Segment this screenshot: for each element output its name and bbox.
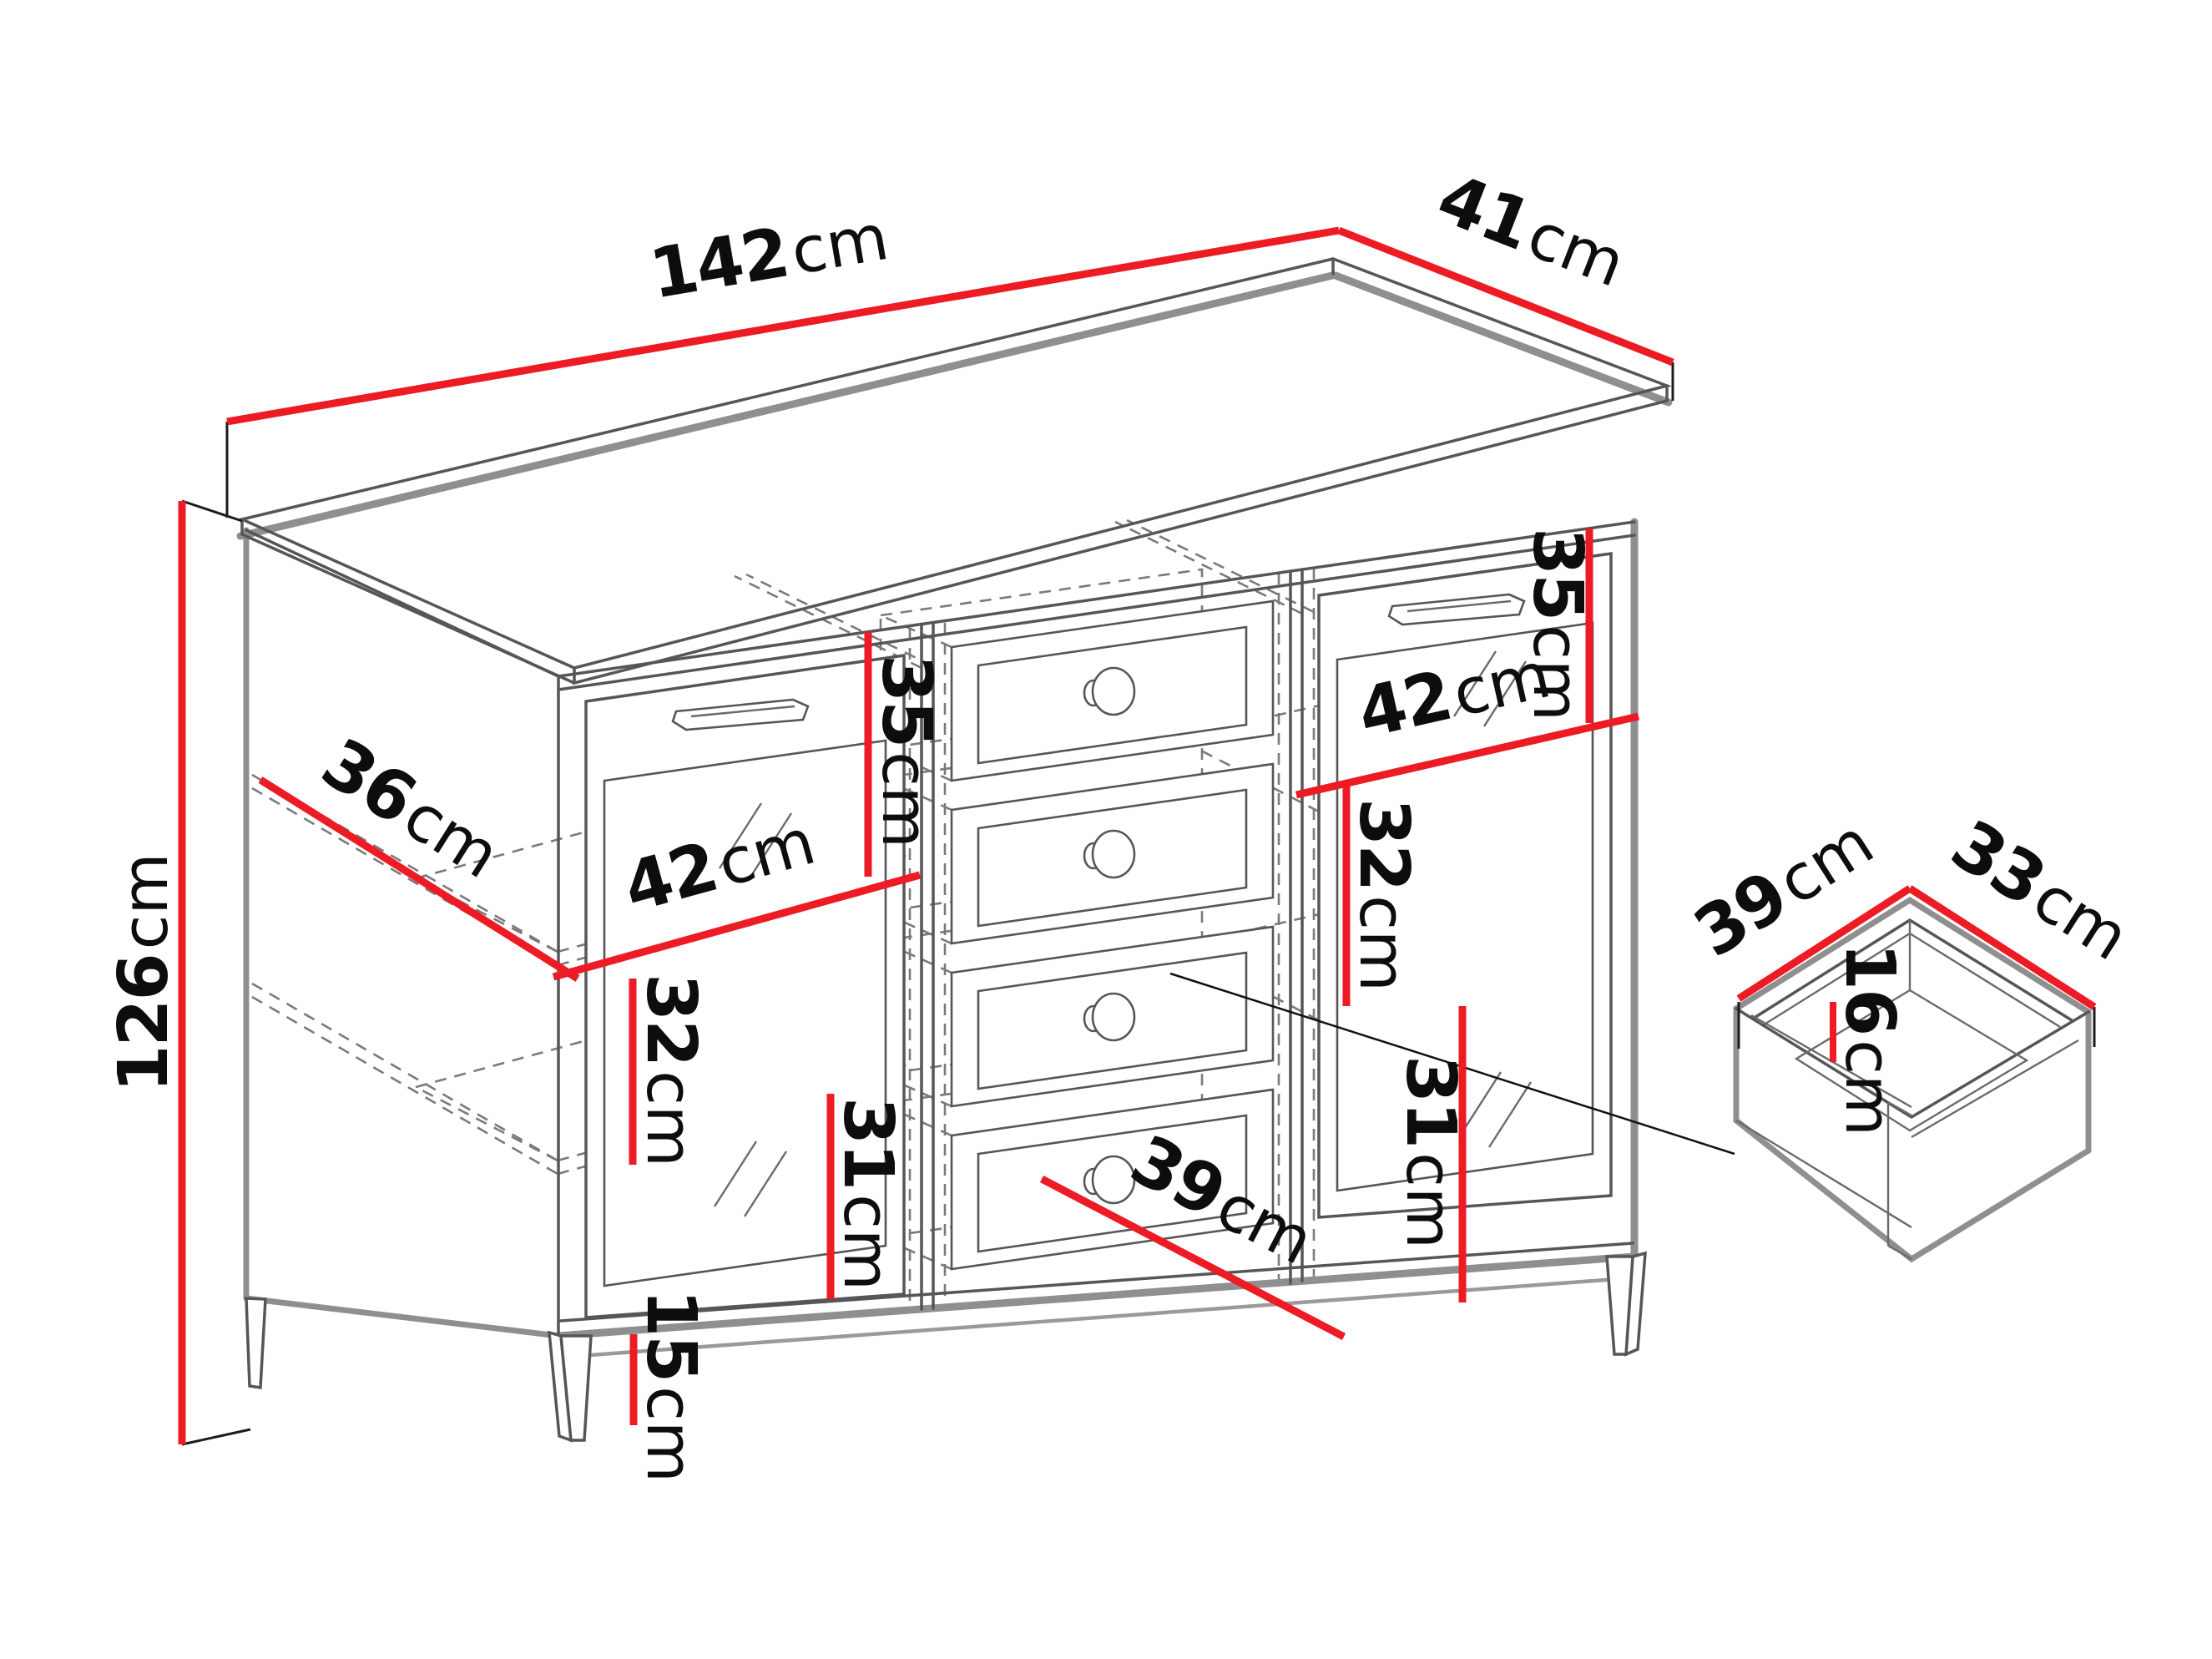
- back-left-leg: [246, 1298, 265, 1388]
- dim-width-label: 142cm: [644, 196, 894, 315]
- dim-left-middle-label: 32cm: [631, 974, 710, 1167]
- dim-box-height-label: 16cm: [1830, 943, 1909, 1136]
- dim-right-middle-label: 32cm: [1344, 798, 1423, 992]
- dim-height-label: 126cm: [104, 853, 184, 1093]
- dim-left-top-label: 35cm: [866, 655, 946, 848]
- dim-left-bottom-label: 31cm: [828, 1097, 907, 1291]
- dim-right-bottom-label: 31cm: [1391, 1055, 1470, 1249]
- dimension-diagram: 142cm 41cm 126cm 36cm 42cm 35cm 32cm 31c…: [0, 0, 2212, 1659]
- dim-right-top-label: 35cm: [1518, 528, 1597, 721]
- dim-leg-label: 15cm: [631, 1289, 710, 1483]
